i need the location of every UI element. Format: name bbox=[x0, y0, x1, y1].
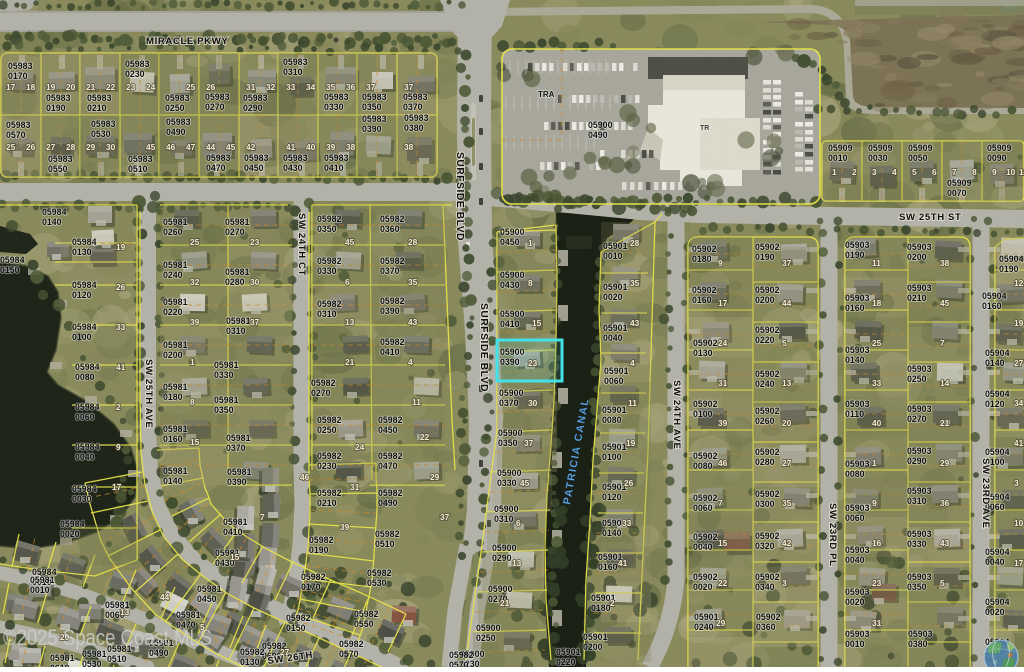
svg-text:©2025 Space Coast MLS: ©2025 Space Coast MLS bbox=[3, 625, 212, 650]
